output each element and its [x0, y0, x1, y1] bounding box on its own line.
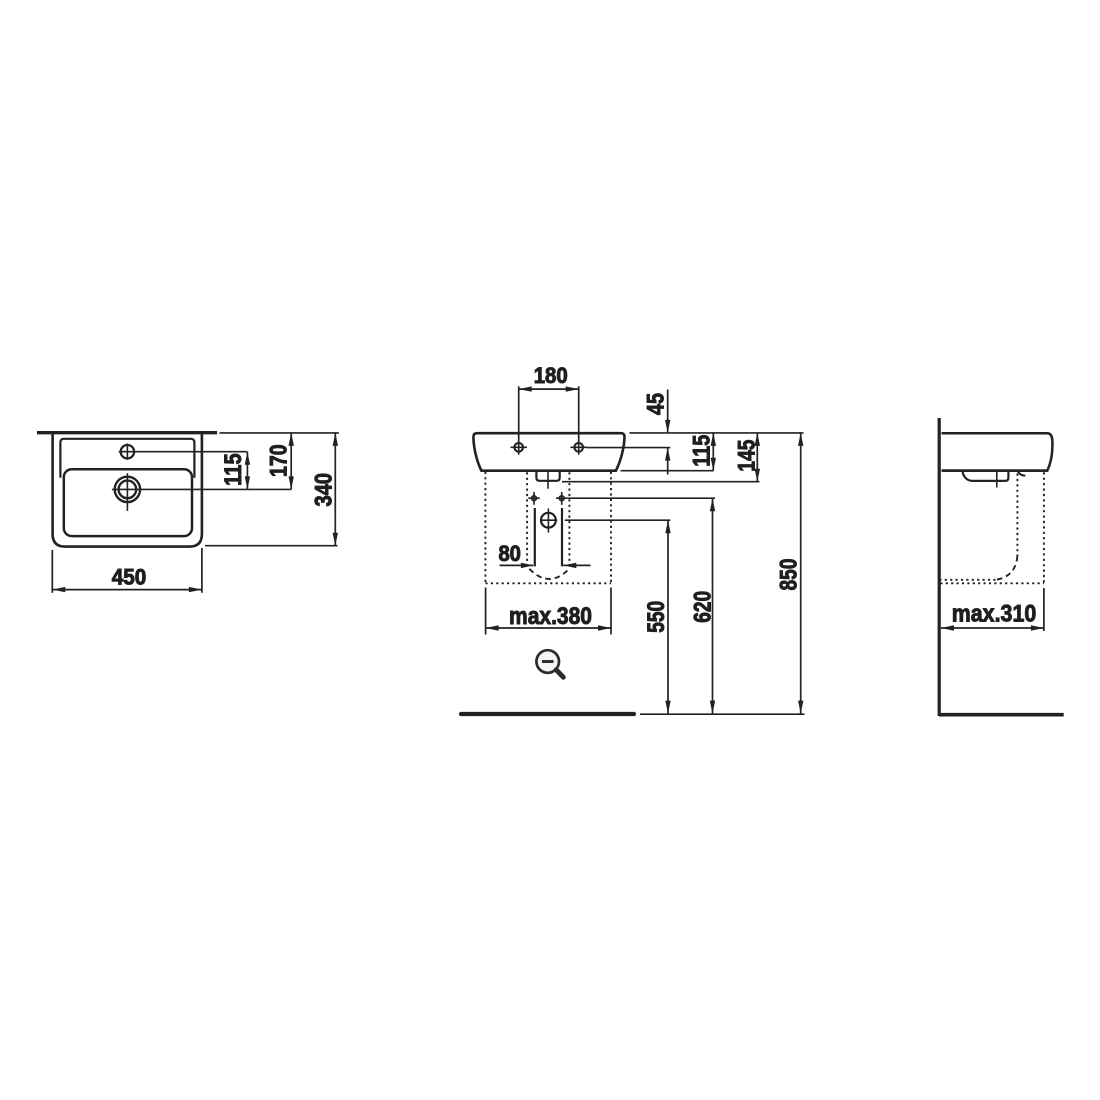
svg-text:115: 115	[220, 453, 247, 486]
svg-text:340: 340	[311, 473, 338, 507]
svg-text:550: 550	[643, 601, 670, 633]
svg-text:45: 45	[642, 393, 669, 415]
svg-text:115: 115	[689, 435, 716, 467]
svg-text:170: 170	[266, 444, 293, 477]
svg-text:145: 145	[734, 440, 761, 472]
svg-text:max.380: max.380	[509, 603, 592, 630]
svg-text:620: 620	[690, 591, 717, 623]
svg-text:180: 180	[534, 363, 568, 388]
svg-text:450: 450	[112, 565, 147, 590]
svg-text:max.310: max.310	[952, 601, 1037, 628]
svg-text:80: 80	[498, 541, 521, 566]
svg-text:850: 850	[776, 559, 803, 591]
